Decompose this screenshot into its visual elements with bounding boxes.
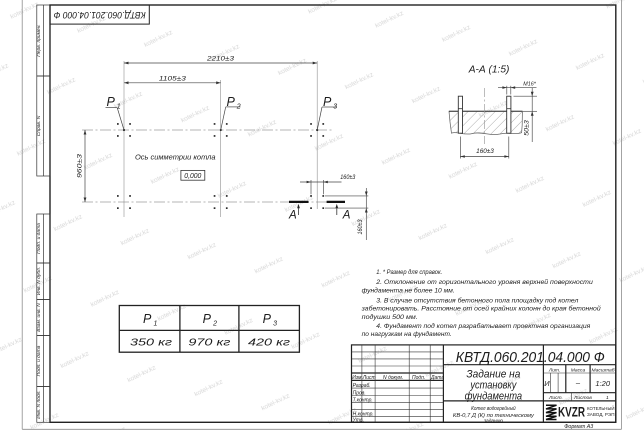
svg-text:2210±3: 2210±3 — [206, 56, 235, 63]
svg-text:P: P — [143, 312, 152, 326]
svg-text:1: 1 — [154, 321, 158, 328]
svg-text:КОТЕЛЬНЫЙ: КОТЕЛЬНЫЙ — [587, 404, 615, 411]
svg-text:ЗАВОД, РЭП: ЗАВОД, РЭП — [587, 412, 615, 417]
svg-text:1. * Размер для справок.: 1. * Размер для справок. — [376, 268, 442, 276]
svg-text:заданию: заданию — [483, 418, 503, 424]
svg-text:P: P — [107, 95, 116, 109]
svg-text:Подп. и дата: Подп. и дата — [36, 223, 42, 254]
svg-text:Взам. инв. N: Взам. инв. N — [36, 303, 42, 332]
svg-text:420 кг: 420 кг — [248, 337, 290, 349]
svg-text:P: P — [203, 312, 212, 326]
svg-text:960±3: 960±3 — [77, 154, 84, 178]
svg-text:P: P — [263, 312, 272, 326]
svg-text:Котел водогрейный: Котел водогрейный — [471, 405, 516, 412]
svg-text:фундамента: фундамента — [465, 391, 523, 403]
svg-text:Утв.: Утв. — [353, 418, 364, 424]
svg-text:350 кг: 350 кг — [130, 337, 172, 349]
svg-text:М16*: М16* — [523, 81, 536, 87]
svg-text:А-А (1:5): А-А (1:5) — [468, 64, 510, 76]
svg-text:Подп.: Подп. — [412, 375, 425, 381]
svg-text:Разраб.: Разраб. — [353, 383, 371, 389]
svg-text:А: А — [288, 210, 297, 222]
svg-text:Ось симметрии котла: Ось симметрии котла — [135, 152, 216, 161]
svg-text:Перв. примен.: Перв. примен. — [36, 24, 42, 57]
svg-text:160±3: 160±3 — [476, 148, 494, 155]
svg-text:KVZR: KVZR — [558, 405, 585, 420]
svg-text:3: 3 — [273, 321, 277, 328]
svg-text:Лист.: Лист. — [548, 395, 563, 401]
svg-text:Масса: Масса — [571, 367, 586, 373]
svg-text:50±3: 50±3 — [523, 120, 530, 136]
svg-text:1: 1 — [606, 395, 609, 401]
svg-text:Инв. N дубл.: Инв. N дубл. — [36, 267, 42, 295]
svg-text:Пров.: Пров. — [353, 390, 366, 396]
svg-text:Лит.: Лит. — [548, 367, 560, 373]
svg-text:2: 2 — [212, 321, 217, 328]
svg-text:КВТД.060.201.04.000 Ф: КВТД.060.201.04.000 Ф — [456, 349, 605, 366]
svg-text:Подп. и дата: Подп. и дата — [36, 345, 42, 376]
svg-text:Т.контр.: Т.контр. — [353, 398, 373, 404]
svg-text:Инв. N подл.: Инв. N подл. — [36, 390, 42, 419]
svg-text:970 кг: 970 кг — [188, 337, 230, 349]
svg-text:2. Отклонение от горизонтально: 2. Отклонение от горизонтального уровня … — [375, 278, 593, 286]
svg-text:КВТД.060.201.04.000 Ф: КВТД.060.201.04.000 Ф — [53, 9, 145, 20]
svg-text:1:20: 1:20 — [595, 379, 610, 388]
svg-text:Дата: Дата — [430, 375, 444, 381]
svg-text:160±3: 160±3 — [340, 175, 356, 181]
svg-text:по нагрузкам на фундамент.: по нагрузкам на фундамент. — [362, 330, 452, 338]
svg-text:Изм.: Изм. — [352, 375, 363, 381]
svg-text:Формат А3: Формат А3 — [564, 424, 593, 430]
svg-text:0,000: 0,000 — [184, 171, 201, 180]
svg-text:фундамента не более 10 мм.: фундамента не более 10 мм. — [362, 287, 455, 295]
svg-text:Листов: Листов — [573, 395, 592, 401]
svg-text:N докум.: N докум. — [383, 375, 403, 381]
svg-text:3. В случае отсутствия бетонно: 3. В случае отсутствия бетонного пола пл… — [376, 296, 578, 304]
svg-text:160±3: 160±3 — [358, 219, 364, 235]
svg-text:Лист: Лист — [362, 375, 376, 381]
svg-text:И: И — [544, 379, 550, 388]
svg-text:Справ. N: Справ. N — [36, 115, 42, 136]
svg-text:А: А — [342, 210, 351, 222]
svg-text:–: – — [575, 378, 581, 387]
svg-text:забетонировать. Расстояние от: забетонировать. Расстояние от осей крайн… — [361, 305, 601, 313]
svg-text:подушки 500 мм.: подушки 500 мм. — [362, 313, 418, 321]
svg-text:1105±3: 1105±3 — [159, 75, 186, 82]
svg-text:Масштаб: Масштаб — [592, 367, 615, 373]
svg-text:4. Фундамент под котел разраба: 4. Фундамент под котел разрабатывает про… — [376, 322, 591, 330]
svg-text:Задание на: Задание на — [466, 368, 520, 380]
